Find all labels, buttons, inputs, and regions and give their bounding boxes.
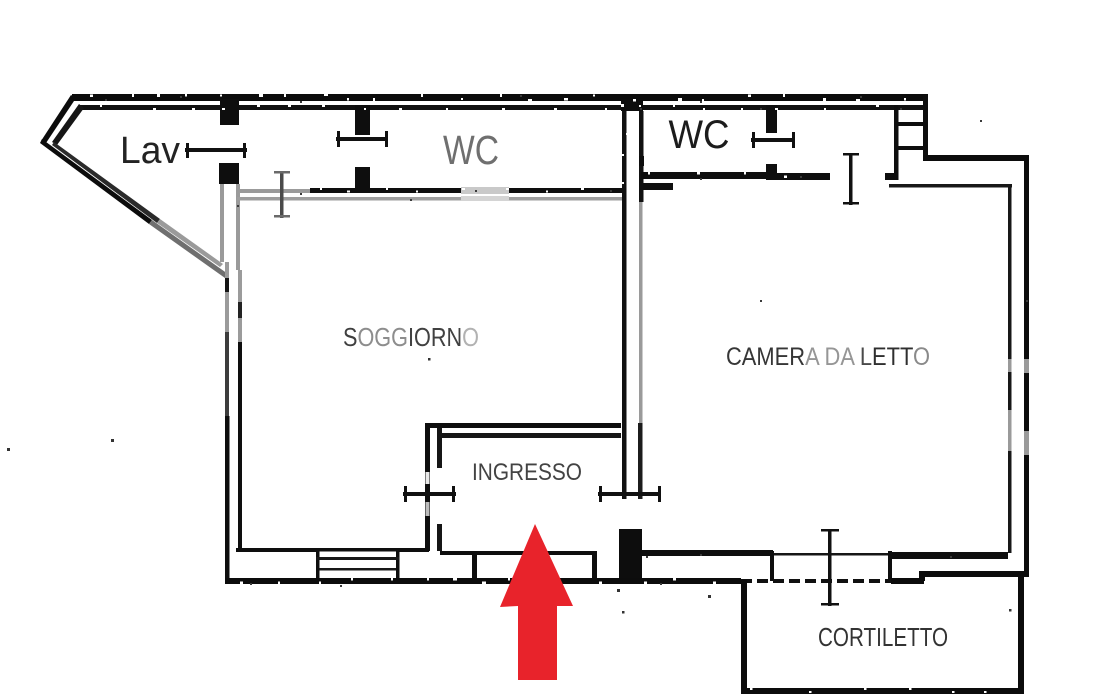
svg-text:INGRESSO: INGRESSO xyxy=(472,459,582,486)
svg-text:SOGGIORNO: SOGGIORNO xyxy=(343,322,479,352)
svg-text:CORTILETTO: CORTILETTO xyxy=(818,622,948,652)
svg-text:CAMERA DA LETTO: CAMERA DA LETTO xyxy=(726,343,930,371)
svg-text:Lav: Lav xyxy=(120,130,180,172)
svg-text:WC: WC xyxy=(669,113,730,157)
svg-text:WC: WC xyxy=(443,127,499,173)
